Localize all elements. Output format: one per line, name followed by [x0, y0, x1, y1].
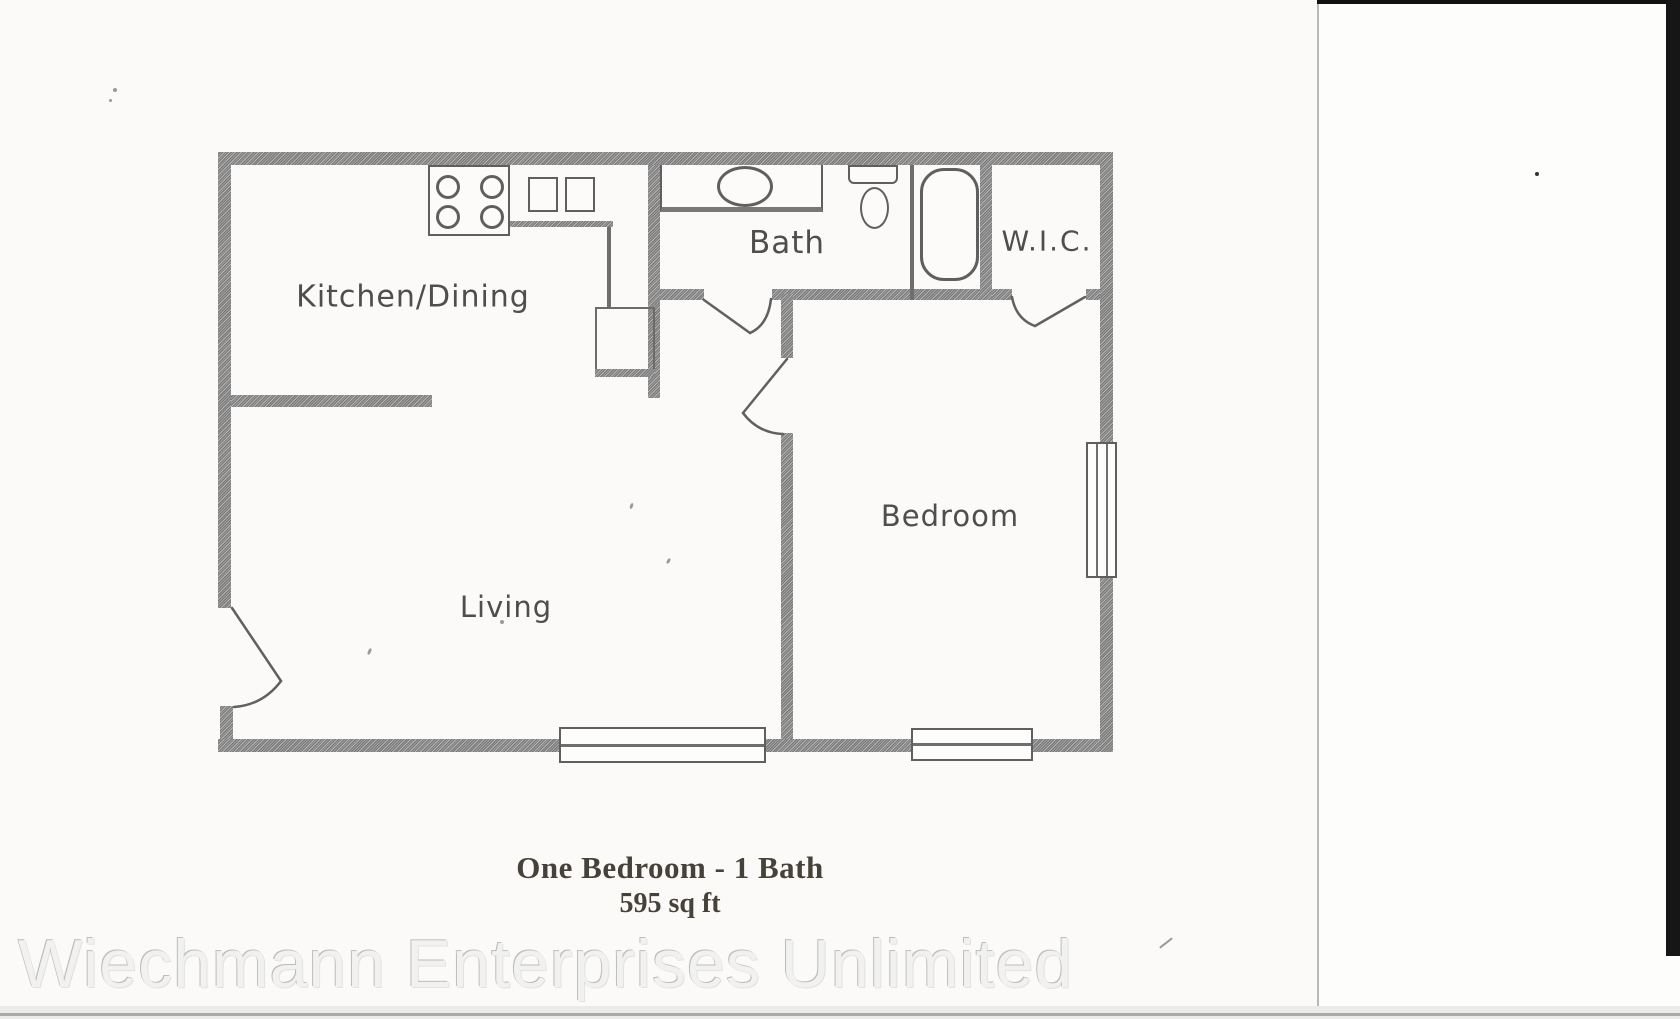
room-label-bedroom: Bedroom — [881, 499, 1019, 533]
scan-speck — [666, 558, 672, 565]
door-arc — [750, 299, 771, 333]
wall-bath-bottom-right — [772, 289, 1012, 300]
right-page-area — [1319, 0, 1680, 1019]
wall-bedroom-divider-upper — [781, 294, 793, 358]
exterior-wall-left-upper — [218, 152, 231, 608]
wall-bedroom-divider-lower — [781, 433, 793, 739]
door-arc — [1012, 297, 1035, 326]
stove-burner-icon — [480, 205, 504, 229]
toilet-tub-partition-line — [910, 165, 914, 300]
wall-kitchen-living-stub — [231, 395, 432, 407]
wall-tub-right — [980, 165, 992, 300]
page-fold-line — [1317, 0, 1319, 1017]
scan-speck — [1535, 172, 1539, 176]
kitchen-counter-side-line — [607, 227, 611, 307]
stove-burner-icon — [436, 175, 460, 199]
scan-speck — [367, 648, 373, 656]
exterior-wall-right-upper — [1100, 152, 1113, 444]
toilet-icon-tank — [848, 165, 898, 184]
room-label-bath: Bath — [749, 225, 825, 261]
scan-edge-right — [1666, 0, 1680, 956]
toilet-icon-bowl — [860, 187, 889, 229]
door-leaf — [743, 359, 787, 413]
wall-wic-door-stub — [1086, 289, 1100, 300]
door-leaf — [1035, 297, 1085, 326]
living-bottom-window-icon — [559, 727, 766, 763]
scanned-floor-plan-page: { "rooms": { "kitchen_dining": "Kitchen/… — [0, 0, 1680, 1019]
room-label-wic: W.I.C. — [1002, 225, 1093, 258]
scan-edge-top — [1317, 0, 1666, 4]
vanity-counter — [660, 165, 823, 212]
scan-speck — [113, 88, 117, 92]
window-pane-line — [1096, 444, 1098, 576]
scan-speck — [629, 503, 634, 510]
plan-title: One Bedroom - 1 Bath — [516, 850, 823, 886]
double-sink-icon-right — [565, 177, 595, 212]
door-leaf — [232, 608, 281, 681]
room-label-kitchen-dining: Kitchen/Dining — [296, 280, 530, 315]
wall-bath-bottom-left — [660, 289, 704, 300]
exterior-wall-right-lower — [1100, 576, 1113, 752]
stove-burner-icon — [436, 205, 460, 229]
scan-speck — [109, 99, 112, 102]
wic-door-swing-icon — [1012, 297, 1085, 326]
door-arc — [743, 413, 783, 434]
kitchen-closet-bottom-wall — [595, 369, 655, 377]
bedroom-side-window-icon — [1086, 442, 1117, 578]
watermark-text: Wiechmann Enterprises Unlimited — [18, 925, 1073, 1003]
scan-artifact-dash — [1159, 937, 1173, 948]
scan-speck — [500, 620, 504, 624]
scan-edge-bottom-line — [0, 1013, 1680, 1016]
bedroom-bottom-window-icon — [911, 728, 1033, 761]
vanity-sink-icon — [717, 166, 773, 207]
door-arc — [234, 681, 281, 707]
kitchen-closet-box — [595, 307, 655, 377]
bath-door-swing-icon — [704, 299, 771, 333]
window-pane-line — [1106, 444, 1108, 576]
exterior-wall-top — [218, 152, 1113, 165]
bathtub-icon — [920, 168, 979, 281]
stove-burner-icon — [480, 175, 504, 199]
double-sink-icon-left — [528, 177, 558, 212]
plan-area-text: 595 sq ft — [619, 888, 720, 920]
entry-door-swing-icon — [232, 608, 281, 707]
kitchen-counter-edge — [510, 221, 613, 227]
window-pane-line — [913, 743, 1031, 746]
window-pane-line — [561, 744, 764, 747]
stove-icon — [428, 165, 510, 236]
bedroom-door-swing-icon — [743, 359, 787, 434]
door-leaf — [704, 300, 750, 333]
room-label-living: Living — [460, 590, 552, 624]
